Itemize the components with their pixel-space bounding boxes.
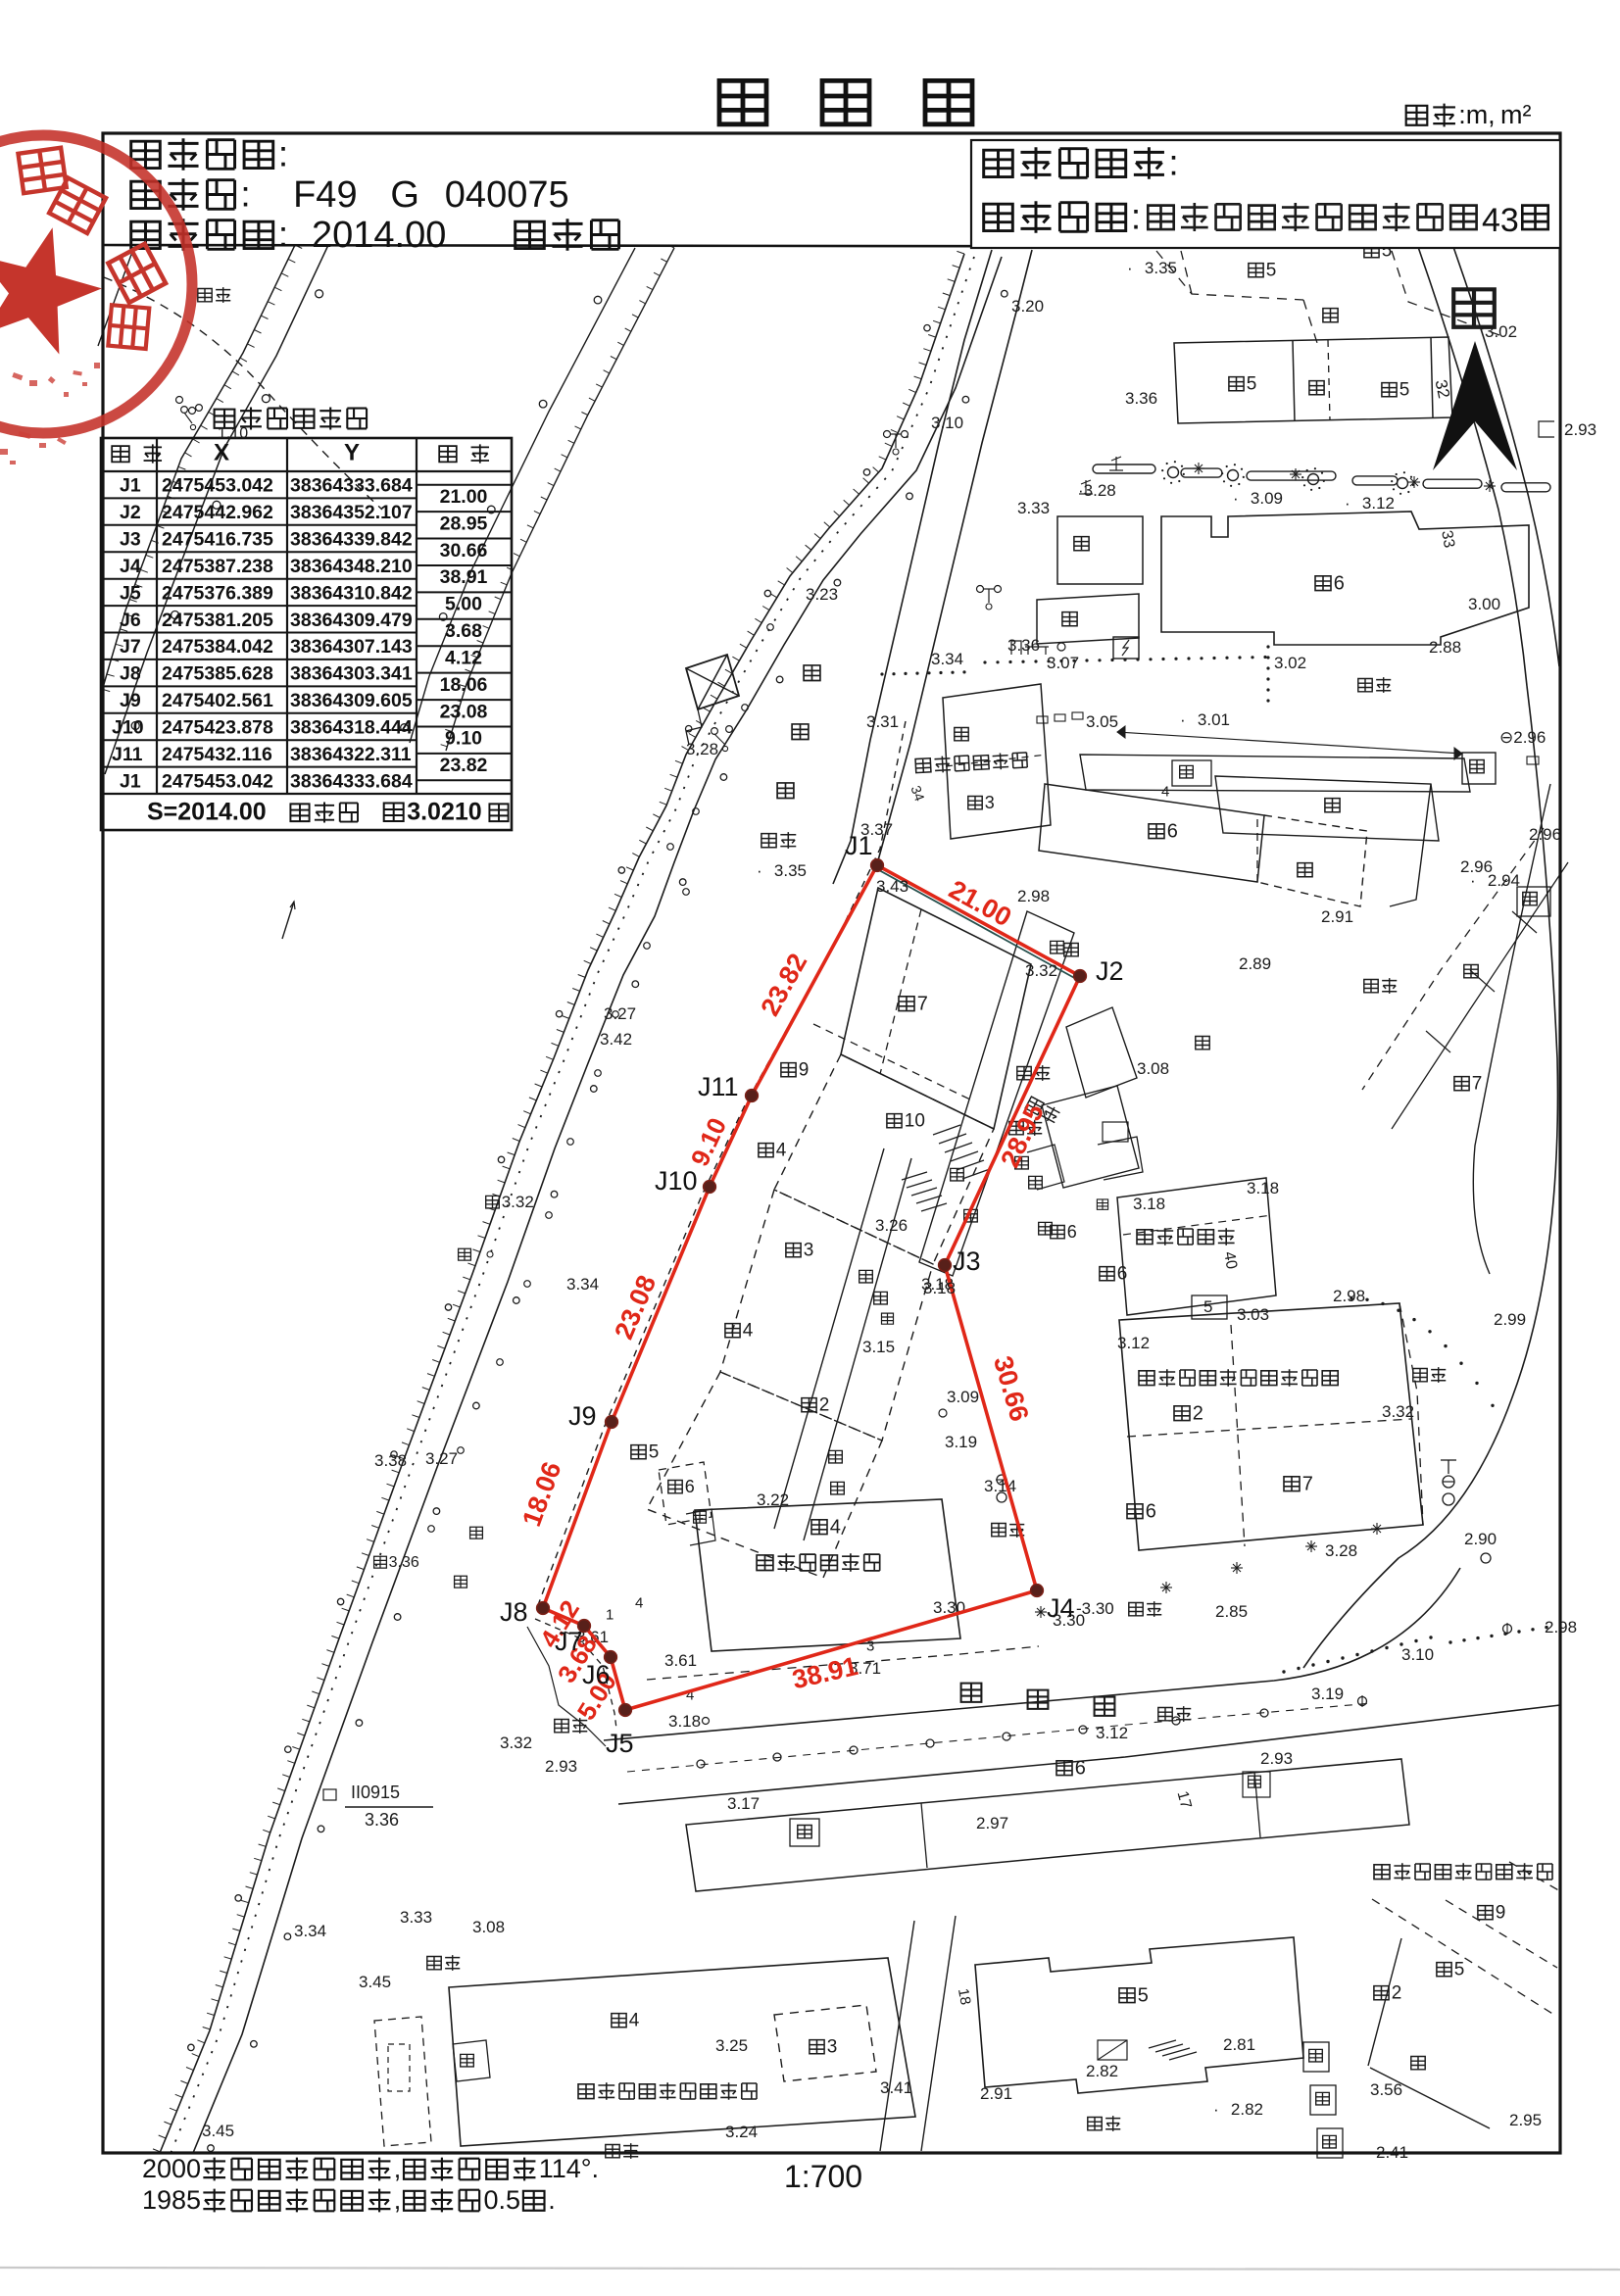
svg-text:23.08: 23.08 xyxy=(440,701,488,722)
svg-text:J4: J4 xyxy=(1047,1593,1075,1623)
svg-text:3.31: 3.31 xyxy=(866,712,899,731)
svg-text:3.25: 3.25 xyxy=(715,2036,748,2055)
svg-text:38364309.605: 38364309.605 xyxy=(290,690,413,711)
svg-text:·: · xyxy=(1180,710,1186,729)
svg-text:3.42: 3.42 xyxy=(600,1030,632,1049)
svg-text:2.93: 2.93 xyxy=(1564,420,1596,439)
svg-text:3.27: 3.27 xyxy=(425,1449,458,1468)
svg-text:2475402.561: 2475402.561 xyxy=(162,690,273,711)
svg-text:3.12: 3.12 xyxy=(1117,1334,1150,1352)
svg-text:G: G xyxy=(390,174,419,216)
svg-text:2.90: 2.90 xyxy=(1464,1530,1497,1548)
svg-text:2475376.389: 2475376.389 xyxy=(162,582,273,604)
svg-text::: : xyxy=(278,133,288,173)
svg-text:3.02: 3.02 xyxy=(1274,654,1306,672)
svg-text:2.97: 2.97 xyxy=(976,1814,1008,1832)
svg-text:5: 5 xyxy=(1247,374,1257,395)
svg-text:28.95: 28.95 xyxy=(440,513,488,534)
svg-text:3.32: 3.32 xyxy=(500,1734,532,1752)
svg-text:7: 7 xyxy=(1472,1074,1483,1095)
svg-text:3.08: 3.08 xyxy=(1137,1059,1169,1078)
svg-text:3.22: 3.22 xyxy=(757,1490,789,1509)
svg-text:J3: J3 xyxy=(120,529,141,551)
svg-text:3.18: 3.18 xyxy=(1247,1179,1279,1197)
svg-text:38364318.444: 38364318.444 xyxy=(290,717,413,739)
svg-text:38364307.143: 38364307.143 xyxy=(290,636,413,658)
svg-text:J7: J7 xyxy=(120,636,141,658)
svg-text:J2: J2 xyxy=(120,502,141,523)
svg-text:3.09: 3.09 xyxy=(947,1388,979,1406)
svg-text:2014.00: 2014.00 xyxy=(312,215,446,256)
svg-text:6: 6 xyxy=(1167,820,1178,842)
svg-text:2.81: 2.81 xyxy=(1223,2035,1255,2054)
svg-text:6: 6 xyxy=(1075,1757,1086,1779)
svg-text:2475453.042: 2475453.042 xyxy=(162,770,273,792)
svg-text:6: 6 xyxy=(1117,1264,1128,1285)
svg-text:·: · xyxy=(1127,259,1133,277)
svg-text:9: 9 xyxy=(1496,1903,1506,1924)
svg-text:3.27: 3.27 xyxy=(604,1004,636,1023)
svg-text:3.01: 3.01 xyxy=(1198,710,1230,729)
svg-text:9.10: 9.10 xyxy=(445,728,482,750)
svg-text:3.07: 3.07 xyxy=(1047,654,1079,672)
svg-text:3.36: 3.36 xyxy=(1007,636,1040,655)
svg-text:J10: J10 xyxy=(112,717,144,739)
svg-text:38364303.341: 38364303.341 xyxy=(290,663,413,685)
svg-text:3.36: 3.36 xyxy=(1125,389,1157,408)
svg-text:II0915: II0915 xyxy=(351,1783,400,1802)
svg-text:3.38: 3.38 xyxy=(374,1451,407,1470)
svg-text:J6: J6 xyxy=(120,610,141,631)
svg-text:3.34: 3.34 xyxy=(566,1275,599,1294)
svg-text:040075: 040075 xyxy=(445,174,569,216)
svg-text:2475381.205: 2475381.205 xyxy=(162,610,273,631)
svg-text:3.37: 3.37 xyxy=(860,820,893,839)
svg-text:4: 4 xyxy=(629,2011,640,2031)
svg-text:3.41: 3.41 xyxy=(880,2078,912,2097)
svg-text:J3: J3 xyxy=(953,1246,981,1276)
svg-text:3.45: 3.45 xyxy=(202,2122,234,2140)
svg-text:38364333.684: 38364333.684 xyxy=(290,475,413,497)
svg-text:3.18: 3.18 xyxy=(668,1712,701,1731)
svg-text:J6: J6 xyxy=(582,1660,611,1689)
svg-text:3.0210: 3.0210 xyxy=(407,799,481,826)
svg-text:1:700: 1:700 xyxy=(784,2159,862,2194)
svg-text:3.61: 3.61 xyxy=(664,1651,697,1670)
svg-text:2.93: 2.93 xyxy=(545,1757,577,1776)
svg-text:2475416.735: 2475416.735 xyxy=(162,529,273,551)
svg-text:4: 4 xyxy=(635,1594,643,1611)
svg-text:1.10: 1.10 xyxy=(218,425,248,442)
svg-text:2.98: 2.98 xyxy=(1017,887,1050,905)
svg-text:J8: J8 xyxy=(500,1597,528,1627)
svg-text:.: . xyxy=(548,2185,556,2215)
svg-text:2.99: 2.99 xyxy=(1494,1310,1526,1329)
svg-text:2.91: 2.91 xyxy=(1321,907,1353,926)
svg-text:J8: J8 xyxy=(120,663,141,685)
svg-text:23.82: 23.82 xyxy=(440,755,488,776)
svg-text:2.82: 2.82 xyxy=(1231,2100,1263,2119)
svg-text::: : xyxy=(240,173,250,214)
svg-text:3.36: 3.36 xyxy=(365,1810,399,1830)
svg-text:3: 3 xyxy=(804,1241,814,1261)
svg-text:38364333.684: 38364333.684 xyxy=(290,770,413,792)
svg-text:4.12: 4.12 xyxy=(445,647,482,668)
svg-text:2475423.878: 2475423.878 xyxy=(162,717,273,739)
svg-text:F49: F49 xyxy=(293,174,357,216)
svg-text:30.66: 30.66 xyxy=(440,540,488,562)
svg-text:·3.28: ·3.28 xyxy=(1078,481,1116,500)
svg-text:2: 2 xyxy=(1193,1402,1203,1424)
svg-text:3.10: 3.10 xyxy=(1401,1645,1434,1664)
svg-text:J11: J11 xyxy=(698,1072,739,1101)
svg-text::: : xyxy=(278,214,288,254)
svg-text:4: 4 xyxy=(743,1321,754,1342)
svg-text:2: 2 xyxy=(819,1395,830,1416)
svg-text:5: 5 xyxy=(1138,1984,1149,2006)
svg-text:2475453.042: 2475453.042 xyxy=(162,475,273,497)
svg-text:38364339.842: 38364339.842 xyxy=(290,529,413,551)
svg-text:3: 3 xyxy=(985,793,995,812)
svg-text:J5: J5 xyxy=(120,582,141,604)
svg-text:33: 33 xyxy=(1438,529,1457,550)
svg-text:5: 5 xyxy=(1454,1960,1465,1980)
svg-text:6: 6 xyxy=(1067,1222,1077,1242)
svg-text:6: 6 xyxy=(1334,572,1345,594)
svg-text:2475432.116: 2475432.116 xyxy=(162,744,272,765)
svg-text:3.43: 3.43 xyxy=(876,877,908,896)
svg-text:2: 2 xyxy=(1392,1983,1402,2004)
svg-text:3: 3 xyxy=(827,2037,838,2058)
svg-text:3.32: 3.32 xyxy=(502,1193,534,1211)
svg-text:·: · xyxy=(1213,2100,1219,2119)
svg-text:2475442.962: 2475442.962 xyxy=(162,502,273,523)
svg-text:3.32: 3.32 xyxy=(1382,1402,1414,1421)
svg-text:J4: J4 xyxy=(120,556,141,577)
svg-text:·: · xyxy=(1470,871,1476,890)
svg-text:3.34: 3.34 xyxy=(931,650,963,668)
svg-text:38364310.842: 38364310.842 xyxy=(290,582,413,604)
svg-text:3.19: 3.19 xyxy=(945,1433,977,1451)
svg-text:2.85: 2.85 xyxy=(1215,1602,1248,1621)
svg-text:J2: J2 xyxy=(1096,956,1124,986)
svg-text:3.05: 3.05 xyxy=(1086,712,1118,731)
svg-text:18: 18 xyxy=(955,1987,974,2006)
svg-text:m²: m² xyxy=(1500,100,1531,129)
svg-text:3.18: 3.18 xyxy=(923,1279,956,1297)
svg-text:J11: J11 xyxy=(112,744,143,765)
svg-text:2.89: 2.89 xyxy=(1239,954,1271,973)
svg-text:3.68: 3.68 xyxy=(445,620,482,642)
svg-text::: : xyxy=(1131,196,1141,236)
svg-text:4: 4 xyxy=(830,1516,841,1538)
svg-text:3.45: 3.45 xyxy=(359,1973,391,1991)
svg-text:5.00: 5.00 xyxy=(445,594,482,615)
svg-text:3.17: 3.17 xyxy=(727,1794,760,1813)
svg-text:3.34: 3.34 xyxy=(294,1922,326,1940)
svg-text:X: X xyxy=(214,440,229,466)
svg-text:2000: 2000 xyxy=(142,2154,201,2183)
svg-text:40: 40 xyxy=(1220,1250,1240,1271)
svg-text:3.20: 3.20 xyxy=(1011,297,1044,316)
svg-text:Y: Y xyxy=(344,440,360,466)
svg-text:J5: J5 xyxy=(606,1729,634,1758)
svg-text:J1: J1 xyxy=(120,770,141,792)
svg-text:3.26: 3.26 xyxy=(875,1216,908,1235)
svg-text:J1: J1 xyxy=(120,475,141,497)
svg-text:5: 5 xyxy=(649,1442,660,1463)
svg-text:3.12: 3.12 xyxy=(1362,494,1395,513)
svg-text:38364348.210: 38364348.210 xyxy=(290,556,413,577)
svg-text:3.35: 3.35 xyxy=(1145,259,1177,277)
svg-text:,: , xyxy=(394,2185,402,2215)
svg-text:7: 7 xyxy=(1302,1473,1313,1494)
svg-text:⊖2.96: ⊖2.96 xyxy=(1499,728,1546,747)
svg-text:1985: 1985 xyxy=(142,2185,201,2215)
svg-text:3.12: 3.12 xyxy=(1096,1724,1128,1742)
svg-text:4: 4 xyxy=(1161,783,1169,800)
svg-text:J9: J9 xyxy=(568,1401,597,1431)
svg-text:18.06: 18.06 xyxy=(440,674,488,696)
svg-text:38364352.107: 38364352.107 xyxy=(290,502,413,523)
svg-text:3.18: 3.18 xyxy=(1133,1195,1165,1213)
svg-text::m,: :m, xyxy=(1458,100,1496,129)
svg-text:5: 5 xyxy=(1266,261,1277,281)
svg-text:J10: J10 xyxy=(655,1166,698,1196)
svg-text:2.82: 2.82 xyxy=(1086,2062,1118,2080)
svg-text:10: 10 xyxy=(905,1111,925,1132)
svg-text:2.93: 2.93 xyxy=(1260,1749,1293,1768)
svg-text:3.33: 3.33 xyxy=(1017,499,1050,517)
svg-text:2475385.628: 2475385.628 xyxy=(162,663,273,685)
svg-text:6: 6 xyxy=(685,1477,695,1496)
svg-text:0.5: 0.5 xyxy=(484,2185,521,2215)
svg-text:2.88: 2.88 xyxy=(1429,638,1461,657)
svg-text:·: · xyxy=(757,861,762,880)
svg-text:3.08: 3.08 xyxy=(472,1918,505,1936)
svg-text:1: 1 xyxy=(606,1606,614,1623)
svg-text:3.28: 3.28 xyxy=(1325,1541,1357,1560)
svg-text:7: 7 xyxy=(917,993,928,1014)
svg-text:38364322.311: 38364322.311 xyxy=(290,744,412,765)
svg-text:3.56: 3.56 xyxy=(1370,2080,1402,2099)
svg-text:3.19: 3.19 xyxy=(1311,1685,1344,1703)
svg-text:38.91: 38.91 xyxy=(440,566,488,588)
svg-text:3.33: 3.33 xyxy=(400,1908,432,1927)
svg-text:2.95: 2.95 xyxy=(1509,2111,1542,2129)
svg-text:2.94: 2.94 xyxy=(1488,871,1520,890)
svg-text:3.09: 3.09 xyxy=(1251,489,1283,508)
svg-text:6: 6 xyxy=(1146,1500,1156,1522)
svg-text:3.10: 3.10 xyxy=(931,414,963,432)
svg-text:J7: J7 xyxy=(555,1627,583,1656)
svg-text:3.32: 3.32 xyxy=(1025,961,1057,980)
svg-text:3.36: 3.36 xyxy=(389,1554,419,1571)
svg-text:3.28: 3.28 xyxy=(686,740,718,758)
svg-text:2.91: 2.91 xyxy=(980,2084,1012,2103)
svg-text:2.98: 2.98 xyxy=(1333,1287,1365,1305)
svg-text::: : xyxy=(1168,142,1178,182)
svg-text:4: 4 xyxy=(776,1141,787,1161)
svg-text:114°.: 114°. xyxy=(539,2154,599,2183)
svg-text:3.23: 3.23 xyxy=(806,585,838,604)
svg-text:5: 5 xyxy=(1399,380,1410,401)
svg-text:·: · xyxy=(1345,494,1350,513)
svg-text:S=2014.00: S=2014.00 xyxy=(147,799,267,826)
svg-text:3.00: 3.00 xyxy=(1468,595,1500,613)
svg-text:38364309.479: 38364309.479 xyxy=(290,610,413,631)
svg-text:2475387.238: 2475387.238 xyxy=(162,556,273,577)
svg-text:3.03: 3.03 xyxy=(1237,1305,1269,1324)
svg-text:5: 5 xyxy=(1203,1297,1212,1316)
svg-text:2475384.042: 2475384.042 xyxy=(162,636,273,658)
svg-text:·: · xyxy=(1233,489,1239,508)
svg-text:21.00: 21.00 xyxy=(440,486,488,508)
svg-text:3.24: 3.24 xyxy=(725,2123,758,2141)
svg-text:,: , xyxy=(394,2154,402,2183)
svg-text:43: 43 xyxy=(1482,202,1519,239)
svg-text:3.15: 3.15 xyxy=(862,1338,895,1356)
svg-text:J9: J9 xyxy=(120,690,141,711)
svg-text:9: 9 xyxy=(799,1060,810,1081)
svg-text:32: 32 xyxy=(1431,378,1453,400)
svg-text:3.35: 3.35 xyxy=(774,861,807,880)
